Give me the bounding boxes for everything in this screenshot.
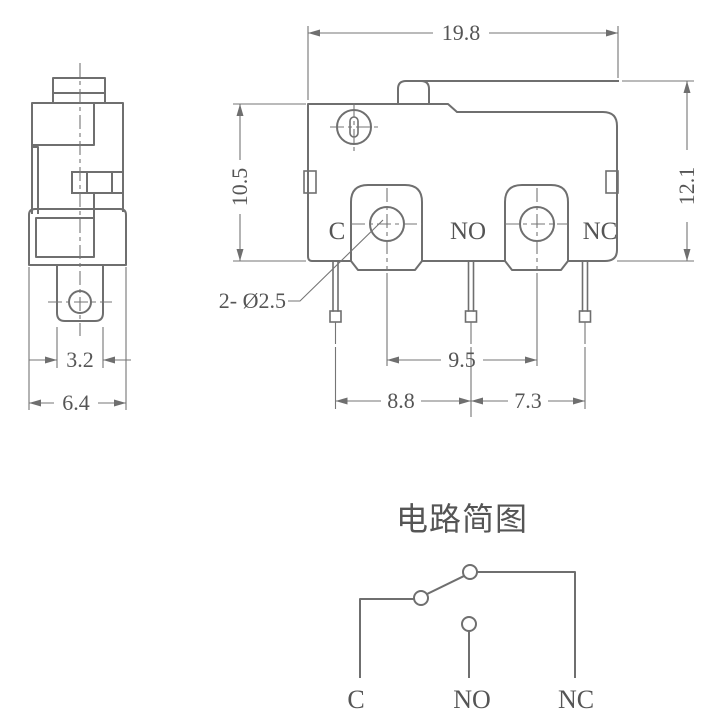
circuit-label-nc: NC [558, 685, 594, 714]
terminal-label-c: C [329, 218, 346, 245]
circuit-pivot-contact [463, 565, 477, 579]
arrowhead [336, 398, 348, 405]
dim-7-3-text: 7.3 [514, 388, 542, 413]
dim-10-5-text: 10.5 [227, 168, 252, 207]
arrowhead [684, 249, 691, 261]
arrowhead [471, 398, 483, 405]
arrowhead [573, 398, 585, 405]
arrowhead [308, 30, 320, 37]
circuit-switch-arm [427, 576, 464, 594]
circuit-contact-no [462, 617, 476, 631]
side-body-outline [32, 103, 123, 213]
dim-9-5-text: 9.5 [448, 347, 476, 372]
arrowhead [103, 357, 115, 364]
front-view: C NO NC [304, 81, 618, 344]
drawing-sheet: 3.2 6.4 [0, 0, 720, 721]
pin-shaft [469, 261, 474, 311]
pin-no [466, 261, 477, 344]
bracket-inner-face [36, 218, 94, 257]
arrowhead [606, 30, 618, 37]
circuit-nc-wire [477, 572, 575, 677]
arrowhead [114, 400, 126, 407]
side-body-internal-lines [32, 103, 123, 218]
dim-12-1-text: 12.1 [674, 167, 699, 206]
arrowhead [237, 249, 244, 261]
circuit-label-c: C [347, 685, 364, 714]
side-view [29, 63, 126, 336]
dim-19-8-text: 19.8 [442, 20, 481, 45]
pin-collar [466, 311, 477, 322]
arrowhead [684, 81, 691, 93]
circuit-title: 电路简图 [396, 501, 528, 537]
dim-8-8-text: 8.8 [387, 388, 415, 413]
microswitch-technical-drawing: 3.2 6.4 [0, 0, 720, 721]
pin-nc [580, 261, 591, 344]
arrowhead [387, 357, 399, 364]
dim-6-4-text: 6.4 [62, 390, 90, 415]
pin-collar [330, 311, 341, 322]
left-side-notch [304, 171, 316, 193]
dim-3-2-text: 3.2 [66, 347, 94, 372]
side-extension-lines [29, 267, 126, 410]
arrowhead [459, 398, 471, 405]
pin-c [330, 261, 341, 344]
circuit-contact-c [414, 591, 428, 605]
circuit-label-no: NO [453, 685, 491, 714]
arrowhead [29, 400, 41, 407]
terminal-label-no: NO [450, 218, 486, 245]
arrowhead [45, 357, 57, 364]
hole-callout-text: 2- Ø2.5 [219, 288, 286, 313]
plunger-outline [53, 78, 105, 103]
arrowhead [525, 357, 537, 364]
pin-collar [580, 311, 591, 322]
terminal-label-nc: NC [583, 218, 618, 245]
plunger-button [398, 81, 429, 103]
pin-shaft [583, 261, 588, 311]
arrowhead [237, 104, 244, 116]
front-body-outline [308, 104, 617, 270]
circuit-c-wire [360, 599, 414, 677]
circuit-diagram: 电路简图 C NO NC [347, 501, 594, 714]
